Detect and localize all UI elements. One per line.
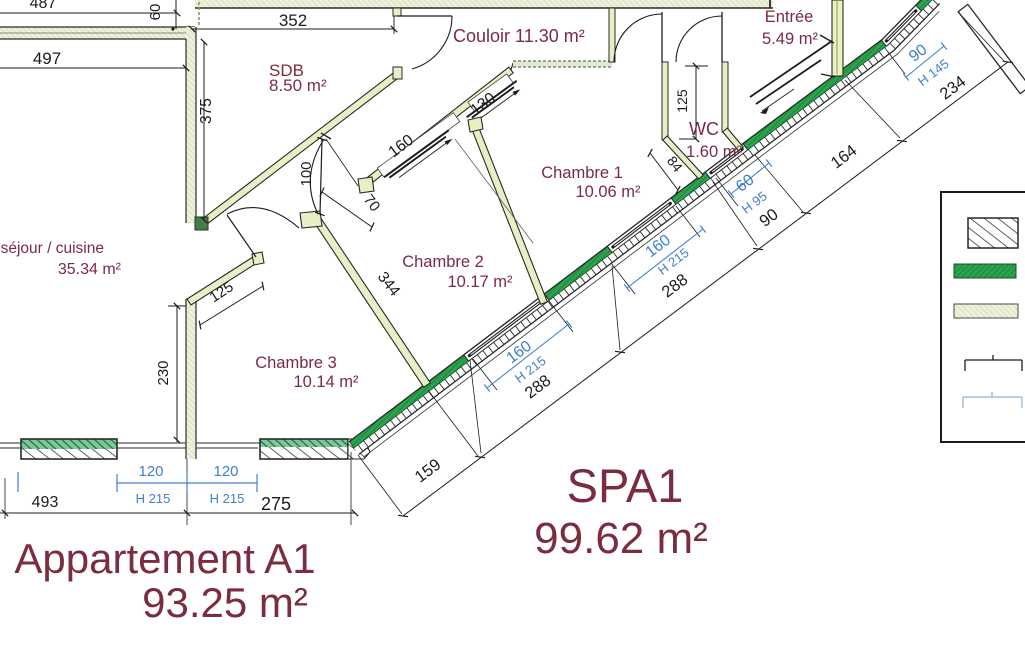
svg-text:10.17 m²: 10.17 m² <box>447 273 513 291</box>
svg-text:487: 487 <box>30 0 57 12</box>
svg-text:375: 375 <box>198 98 215 124</box>
svg-text:93.25 m²: 93.25 m² <box>142 579 308 626</box>
svg-text:séjour / cuisine: séjour / cuisine <box>1 240 104 257</box>
svg-text:WC: WC <box>689 119 719 139</box>
svg-text:120: 120 <box>138 463 163 480</box>
svg-text:Chambre 1: Chambre 1 <box>541 164 623 182</box>
svg-text:Entrée: Entrée <box>765 8 814 26</box>
svg-text:H 215: H 215 <box>136 491 171 506</box>
svg-text:35.34 m²: 35.34 m² <box>58 261 122 278</box>
svg-text:Chambre 3: Chambre 3 <box>255 354 337 372</box>
svg-text:100: 100 <box>298 161 315 186</box>
svg-text:1.60 m²: 1.60 m² <box>686 143 742 161</box>
svg-text:SPA1: SPA1 <box>567 459 684 512</box>
svg-text:Couloir 11.30 m²: Couloir 11.30 m² <box>453 26 585 46</box>
svg-text:493: 493 <box>32 494 59 511</box>
svg-text:5.49 m²: 5.49 m² <box>762 30 818 48</box>
svg-text:8.50 m²: 8.50 m² <box>269 76 327 95</box>
svg-text:10.14 m²: 10.14 m² <box>293 373 359 391</box>
svg-text:Chambre 2: Chambre 2 <box>402 253 484 271</box>
svg-text:352: 352 <box>279 11 307 30</box>
svg-text:H 215: H 215 <box>210 491 245 506</box>
svg-text:99.62 m²: 99.62 m² <box>534 514 708 563</box>
svg-text:230: 230 <box>155 360 172 385</box>
svg-text:Appartement A1: Appartement A1 <box>14 535 315 582</box>
svg-text:497: 497 <box>33 49 61 68</box>
svg-text:125: 125 <box>674 89 690 113</box>
svg-text:275: 275 <box>261 494 291 514</box>
svg-text:10.06 m²: 10.06 m² <box>575 183 641 201</box>
svg-text:120: 120 <box>213 463 238 480</box>
svg-text:60: 60 <box>147 4 164 21</box>
